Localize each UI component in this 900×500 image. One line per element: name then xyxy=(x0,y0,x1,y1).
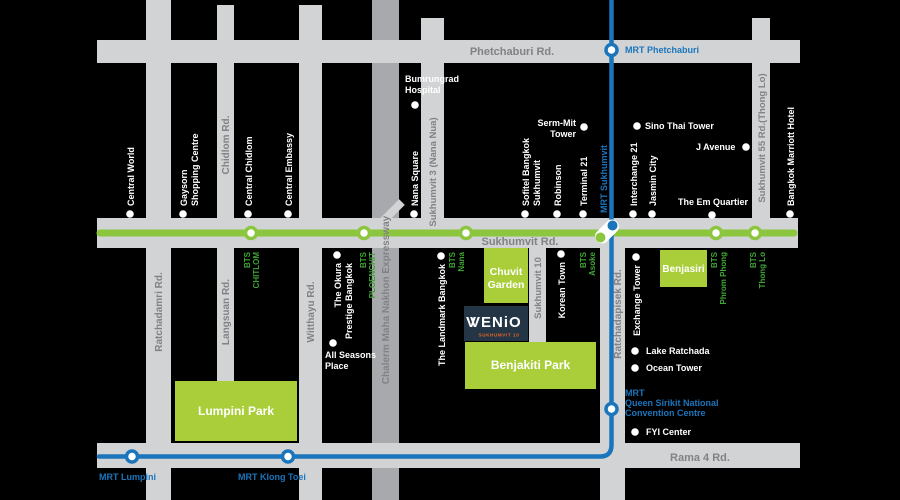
venio-logo-subtitle: SUKHUMVIT 10 xyxy=(479,333,520,338)
fyi-center-label: FYI Center xyxy=(646,427,692,437)
bumrungrad-dot xyxy=(411,101,419,109)
benjakiti-park-label: Benjakiti Park xyxy=(491,358,571,372)
ocean-tower-dot xyxy=(631,364,639,372)
mrt-qsncc-station xyxy=(606,404,617,415)
ratchadamri-road-label: Ratchadamri Rd. xyxy=(154,272,165,352)
bts-asoke-station xyxy=(596,233,606,243)
bts-nana-prefix: BTS xyxy=(448,251,457,268)
sofitel-label-1: Sofitel Bangkok xyxy=(521,137,531,206)
bts-thonglo-station xyxy=(750,228,761,239)
korean-town-label: Korean Town xyxy=(557,262,567,318)
bts-ploenchit-prefix: BTS xyxy=(359,251,368,268)
bts-chitlom-station xyxy=(246,228,257,239)
landmark-bangkok-dot xyxy=(437,252,445,260)
mrt-qsncc-label-2: Queen Sirikit National xyxy=(625,398,719,408)
landmark-bangkok-label: The Landmark Bangkok xyxy=(437,263,447,366)
j-avenue-dot xyxy=(742,143,750,151)
exchange-tower-dot xyxy=(632,253,640,261)
jasmin-city-label: Jasmin City xyxy=(648,155,658,206)
mrt-qsncc-label-3: Convention Centre xyxy=(625,408,706,418)
korean-town-dot xyxy=(557,250,565,258)
witthayu-road-label: Witthayu Rd. xyxy=(306,281,317,342)
terminal21-dot xyxy=(579,210,587,218)
j-avenue-label: J Avenue xyxy=(696,142,735,152)
bts-asoke-label: Asoke xyxy=(588,251,597,276)
marriott-dot xyxy=(786,210,794,218)
all-seasons-label-2: Place xyxy=(325,361,349,371)
chuvit-garden-label-1: Chuvit xyxy=(490,266,523,278)
langsuan-road-label: Langsuan Rd. xyxy=(221,279,232,345)
em-quartier-dot xyxy=(708,211,716,219)
marriott-label: Bangkok Marriott Hotel xyxy=(786,107,796,206)
sino-thai-dot xyxy=(633,122,641,130)
sukhumvit3-road-label: Sukhumvit 3 (Nana Nua) xyxy=(428,117,439,226)
lake-ratchada-label: Lake Ratchada xyxy=(646,346,711,356)
robinson-dot xyxy=(553,210,561,218)
bumrungrad-label-2: Hospital xyxy=(405,85,441,95)
mrt-sukhumvit-label: MRT Sukhumvit xyxy=(599,145,609,213)
bts-nana-label: Nana xyxy=(457,251,466,271)
sukhumvit-road-label: Sukhumvit Rd. xyxy=(481,236,558,248)
central-embassy-label: Central Embassy xyxy=(284,133,294,206)
nana-square-dot xyxy=(410,210,418,218)
central-chidlom-dot xyxy=(244,210,252,218)
bts-chitlom-label: CHITLOM xyxy=(252,252,261,289)
central-chidlom-label: Central Chidlom xyxy=(244,136,254,206)
gaysorn-label-1: Gaysorn xyxy=(179,169,189,206)
mrt-lumpini-station xyxy=(127,451,138,462)
ratchadapisek-road-label: Ratchadapisek Rd. xyxy=(613,269,624,359)
interchange21-label: Interchange 21 xyxy=(629,142,639,206)
interchange21-dot xyxy=(629,210,637,218)
sermmit-label-2: Tower xyxy=(550,129,576,139)
sermmit-label-1: Serm-Mit xyxy=(537,118,576,128)
bangkok-location-map: Lumpini Park Benjakiti Park Chuvit Garde… xyxy=(0,0,900,500)
all-seasons-label-1: All Seasons xyxy=(325,350,376,360)
bts-ploenchit-station xyxy=(359,228,370,239)
okura-label-1: The Okura xyxy=(333,262,343,308)
bumrungrad-label-1: Bumrungrad xyxy=(405,74,459,84)
bts-thonglo-label: Thong Lo xyxy=(758,252,767,289)
sino-thai-label: Sino Thai Tower xyxy=(645,121,714,131)
bts-ploenchit-label: PLOENCHIT xyxy=(368,252,377,298)
lake-ratchada-dot xyxy=(631,347,639,355)
fyi-center-dot xyxy=(631,428,639,436)
venio-logo-text: VENiO xyxy=(470,314,522,331)
gaysorn-dot xyxy=(179,210,187,218)
bts-thonglo-prefix: BTS xyxy=(749,251,758,268)
chidlom-road-label: Chidlom Rd. xyxy=(221,115,232,174)
mrt-lumpini-label: MRT Lumpini xyxy=(99,472,156,482)
bts-phromphong-station xyxy=(711,228,722,239)
robinson-label: Robinson xyxy=(553,165,563,207)
sukhumvit55-road-label: Sukhumvit 55 Rd.(Thong Lo) xyxy=(757,73,768,202)
terminal21-label: Terminal 21 xyxy=(579,157,589,206)
lumpini-park-label: Lumpini Park xyxy=(198,404,274,418)
all-seasons-dot xyxy=(329,339,337,347)
jasmin-city-dot xyxy=(648,210,656,218)
bts-chitlom-prefix: BTS xyxy=(243,251,252,268)
road-ratchadamri xyxy=(146,0,171,500)
map-canvas: Lumpini Park Benjakiti Park Chuvit Garde… xyxy=(0,0,900,500)
gaysorn-label-2: Shopping Centre xyxy=(190,134,200,207)
bts-phromphong-label: Phrom Phong xyxy=(719,252,728,305)
ocean-tower-label: Ocean Tower xyxy=(646,363,702,373)
bts-nana-station xyxy=(461,228,472,239)
venio-badge: VENiO V SUKHUMVIT 10 xyxy=(464,306,528,341)
rama4-road-label: Rama 4 Rd. xyxy=(670,452,730,464)
venio-logo-doublev: V xyxy=(466,314,476,331)
em-quartier-label: The Em Quartier xyxy=(678,197,749,207)
mrt-klongtoei-station xyxy=(283,451,294,462)
mrt-phetchaburi-label: MRT Phetchaburi xyxy=(625,45,699,55)
bts-asoke-prefix: BTS xyxy=(579,251,588,268)
mrt-phetchaburi-station xyxy=(606,45,617,56)
mrt-klongtoei-label: MRT Klong Toei xyxy=(238,472,306,482)
bts-phromphong-prefix: BTS xyxy=(710,251,719,268)
chuvit-garden-label-2: Garden xyxy=(488,279,525,291)
mrt-qsncc-label-1: MRT xyxy=(625,388,645,398)
okura-label-2: Prestige Bangkok xyxy=(344,262,354,339)
phetchaburi-road-label: Phetchaburi Rd. xyxy=(470,46,554,58)
benjasiri-park-label: Benjasiri xyxy=(662,264,704,275)
expressway-label: Chalerm Maha Nakhon Expressway xyxy=(381,215,392,384)
exchange-tower-label: Exchange Tower xyxy=(632,265,642,336)
sukhumvit10-road-label: Sukhumvit 10 xyxy=(533,257,544,319)
central-world-label: Central World xyxy=(126,147,136,206)
sofitel-dot xyxy=(521,210,529,218)
road-witthayu xyxy=(299,5,322,500)
sermmit-dot xyxy=(580,123,588,131)
central-world-dot xyxy=(126,210,134,218)
nana-square-label: Nana Square xyxy=(410,151,420,206)
sofitel-label-2: Sukhumvit xyxy=(532,160,542,206)
mrt-sukhumvit-station xyxy=(608,221,618,231)
central-embassy-dot xyxy=(284,210,292,218)
okura-dot xyxy=(333,251,341,259)
